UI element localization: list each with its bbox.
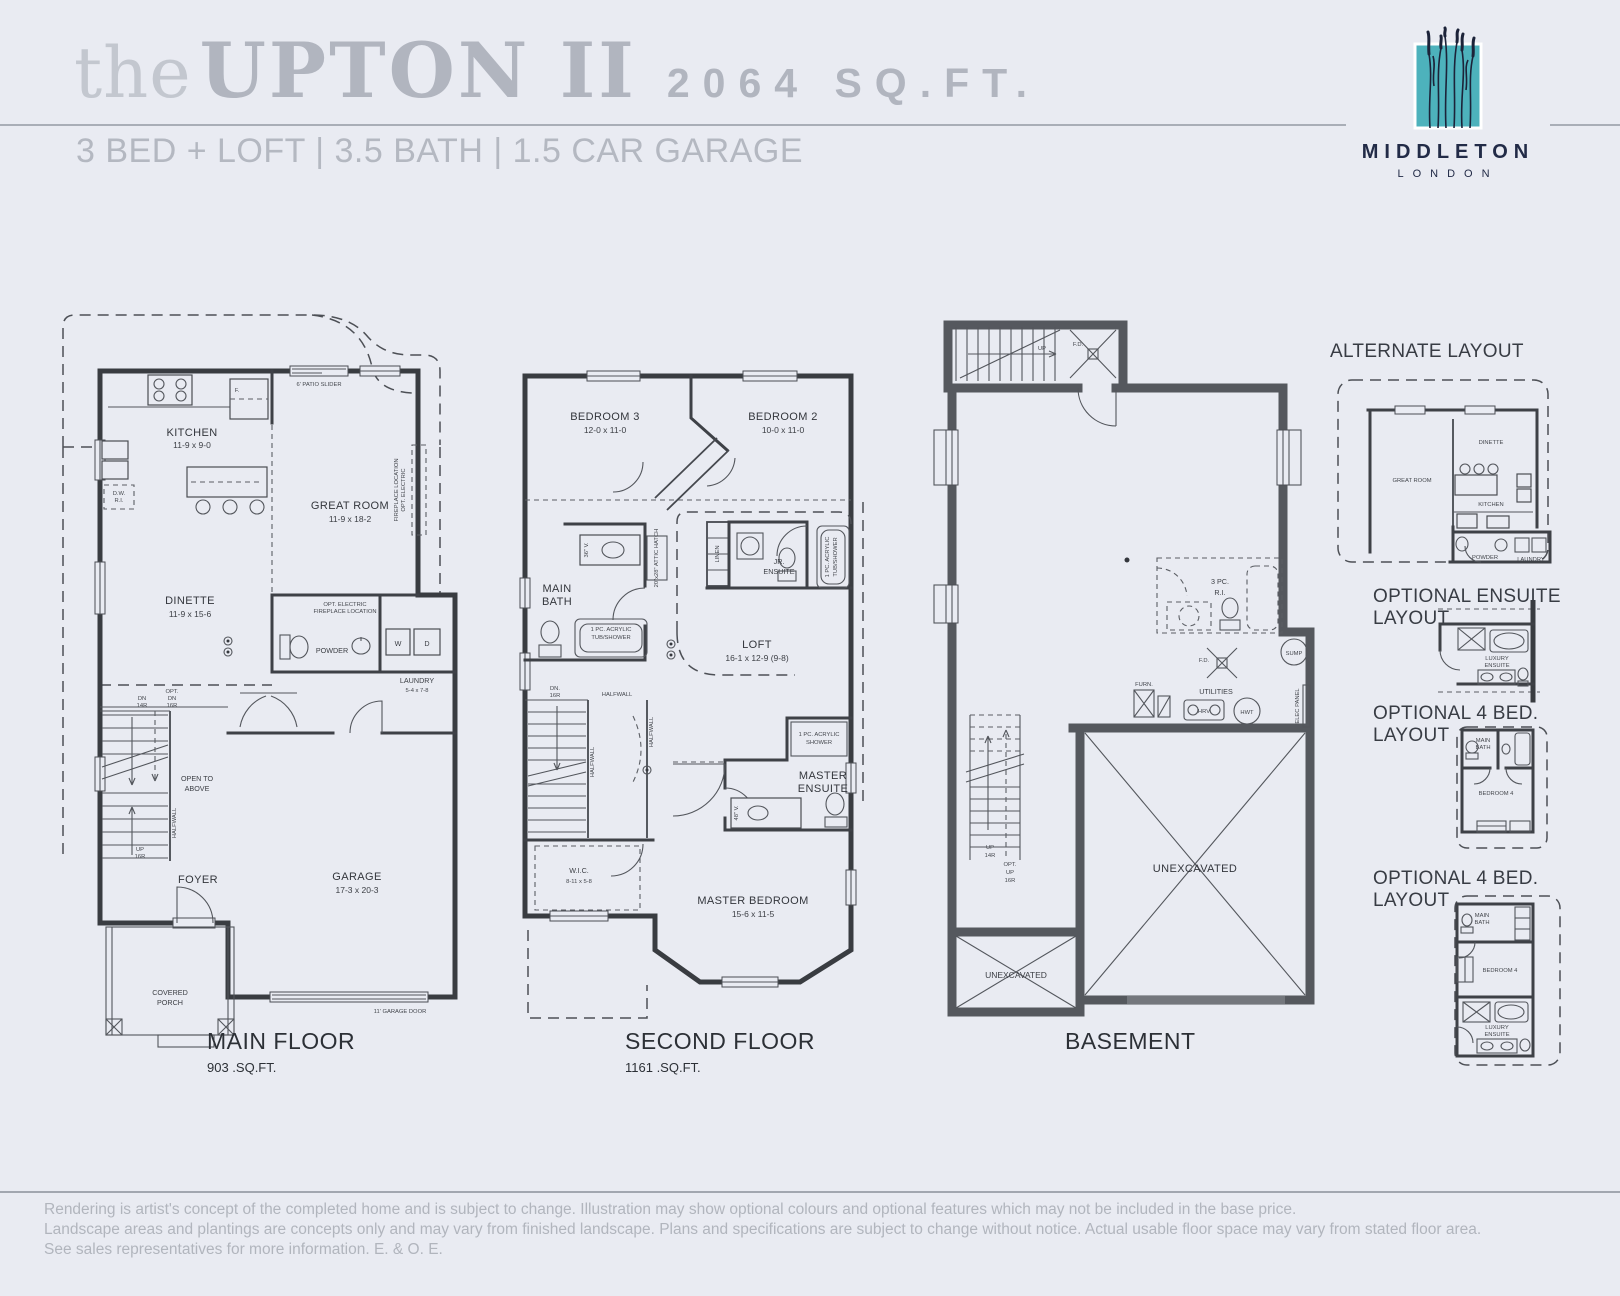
open-above-b: ABOVE [185,784,210,793]
vanity48-label: 48" V. [734,805,740,820]
closet [1477,821,1530,832]
toilet-icon [280,635,308,659]
patio-slider [290,366,348,376]
fridge-icon [230,379,268,419]
porch-label-a: COVERED [152,988,188,997]
up14-b: 14R [985,853,996,859]
alt-dinette-label: DINETTE [1479,440,1504,446]
bedroom3-label: BEDROOM 3 [570,411,640,423]
optup-c: 16R [1005,878,1016,884]
optional-4bed-plan-2: MAIN BATH BEDROOM 4 LUXURY ENSUITE [1330,890,1590,1140]
master-bedroom-dims: 15-6 x 11-5 [732,909,775,919]
opt-dn-b: DN [168,696,176,702]
b4b-bath-a: MAIN [1475,913,1490,919]
alternate-layout-plan: GREAT ROOM DINETTE KITCHEN POWDER LAUNDR… [1295,362,1595,567]
powder-label: POWDER [316,646,348,655]
dinette-label: DINETTE [165,595,215,607]
up-arrow-label: UP [1038,346,1046,352]
window [934,585,958,623]
garage-door [270,992,428,1002]
walls [1440,624,1533,684]
luxury-ensuite-b: ENSUITE [1484,663,1509,669]
foyer-label: FOYER [178,874,218,886]
logo-brand-text: MIDDLETON [1346,141,1550,164]
walk-in-closet [535,844,643,910]
dinette-dims: 11-9 x 15-6 [169,609,212,619]
halfwall-1: HALFWALL [602,692,633,698]
disclaimer: Rendering is artist's concept of the com… [44,1200,1584,1260]
foyer-closet [240,693,297,727]
fireplace-label-2a: OPT. ELECTRIC [323,602,366,608]
toilet-icon [825,793,847,827]
toilet-icon [539,621,561,657]
basement-caption: BASEMENT [1065,1028,1196,1055]
alt-powder-label: POWDER [1472,555,1498,561]
fd-label-1: F.D. [1073,342,1084,348]
fridge-label: F. [235,388,240,394]
main-floor-title: MAIN FLOOR [207,1028,355,1055]
window [95,562,105,614]
shower-icon [1463,1002,1490,1022]
halfwall-label: HALFWALL [172,807,178,838]
window [587,371,640,381]
b4b-bath-b: BATH [1474,920,1489,926]
fireplace-label-1a: OPT. ELECTRIC [401,468,407,511]
garage-door-above [1127,996,1285,1004]
tub-icon [1515,733,1530,765]
island [187,467,267,514]
window [743,371,797,381]
alternate-layout-heading: ALTERNATE LAYOUT [1330,341,1524,363]
sump-label: SUMP [1286,651,1303,657]
b4b-luxury-b: ENSUITE [1484,1032,1509,1038]
master-door [673,764,725,816]
loft-label: LOFT [742,639,772,651]
b4a-bath-b: BATH [1475,745,1490,751]
window [520,578,530,608]
garage-man-door [350,701,382,733]
toilet-icon [1502,744,1510,754]
main-floor-plan: KITCHEN 11-9 x 9-0 GREAT ROOM 11-9 x 18-… [60,295,480,1055]
great-room-dims: 11-9 x 18-2 [329,514,372,524]
jr-ensuite-b: ENSUITE [763,567,794,576]
shower-icon [791,722,847,756]
dryer-label: D [424,639,429,648]
window [550,911,608,921]
attic-hatch-label: 20"x28" ATTIC HATCH [654,529,660,588]
halfwall-2: HALFWALL [590,746,596,777]
disclaimer-line-1: Rendering is artist's concept of the com… [44,1200,1584,1220]
laundry-dims: 5-4 x 7-8 [406,688,429,694]
hwt-label: HWT [1240,710,1254,716]
shower-label-b: SHOWER [806,740,832,746]
3pc-label-a: 3 PC. [1211,577,1229,586]
window [846,870,856,905]
main-floor-sqft: 903 .SQ.FT. [207,1060,355,1075]
title-the: the [74,32,192,114]
optup-b: UP [1006,870,1014,876]
floor-drain [1070,330,1116,378]
laundry-fixtures [1515,538,1546,552]
bedroom2-label: BEDROOM 2 [748,411,818,423]
second-floor-plan: BEDROOM 3 12-0 x 11-0 BEDROOM 2 10-0 x 1… [495,330,885,1020]
master-bedroom-label: MASTER BEDROOM [697,895,808,907]
fireplace-label-1b: FIREPLACE LOCATION [394,458,400,521]
bedroom-divider [691,376,727,450]
bedroom3-dims: 12-0 x 11-0 [584,425,627,435]
logo-reeds-icon [1400,26,1496,132]
sink-icon [352,637,370,654]
disclaimer-line-2: Landscape areas and plantings are concep… [44,1220,1584,1240]
kitchen-label: KITCHEN [166,427,217,439]
window [95,757,105,791]
b4b-luxury-a: LUXURY [1485,1025,1509,1031]
master-ensuite-b: ENSUITE [798,783,848,795]
vanity-icon [1477,1039,1517,1053]
dn16-b: 16R [550,693,561,699]
vanity36-label: 36" V. [584,542,590,557]
second-floor-sqft: 1161 .SQ.FT. [625,1060,815,1075]
title-model-name: UPTON II [200,26,637,115]
page-title: the UPTON II 2064 SQ.FT. [74,26,1040,115]
wic-dims: 8-11 x 5-8 [566,879,592,885]
sink-icon [737,533,763,559]
tub2-label-b: TUB/SHOWER [833,537,839,576]
tub-icon [1490,630,1528,652]
main-bath-a: MAIN [542,583,571,595]
builder-logo: MIDDLETON LONDON [1346,26,1550,186]
garage-door-label: 11' GARAGE DOOR [374,1009,427,1015]
optup-a: OPT. [1004,862,1017,868]
wic-label: W.I.C. [569,866,589,875]
closet-walls [655,438,729,510]
second-floor-title: SECOND FLOOR [625,1028,815,1055]
basement-title: BASEMENT [1065,1028,1196,1055]
vanity-icon [1478,670,1515,684]
optional-4bed-plan-1: MAIN BATH BEDROOM 4 [1330,725,1590,885]
garage-label: GARAGE [332,871,381,883]
hrv-label: HRV [1198,709,1210,715]
b4b-bedroom-label: BEDROOM 4 [1483,968,1519,974]
tub2-label-a: 1 PC. ACRYLIC [825,537,831,578]
front-door [173,887,215,928]
stove-icon [148,375,192,405]
elec-panel-label: ELEC PANEL [1295,688,1301,724]
halfwall-3: HALFWALL [649,716,655,747]
stairs-lower [966,715,1024,860]
island [1455,464,1498,495]
fireplace-label-2b: FIREPLACE LOCATION [313,609,376,615]
unexcavated-label-1: UNEXCAVATED [985,970,1047,980]
kitchen-dims: 11-9 x 9-0 [173,440,211,450]
furnace-icon [1134,690,1170,717]
stairs [100,711,170,861]
stairs-top [956,327,1060,381]
luxury-ensuite-a: LUXURY [1485,656,1509,662]
up-label-b: 16R [135,854,146,860]
garage-dims: 17-3 x 20-3 [336,885,379,895]
tub-icon [1495,1002,1528,1022]
utilities-label: UTILITIES [1199,687,1233,696]
foundation-walls [948,388,1310,1012]
dn-label-a: DN [138,696,146,702]
tub1-label-a: 1 PC. ACRYLIC [591,627,632,633]
alt-laundry-label: LAUNDRY [1517,557,1545,563]
loft-dims: 16-1 x 12-9 (9-8) [725,653,788,663]
logo-city-text: LONDON [1346,168,1550,180]
up-label-a: UP [136,847,144,853]
dw-ri-label: R.I. [114,498,123,504]
dn16-a: DN. [550,686,560,692]
second-floor-caption: SECOND FLOOR 1161 .SQ.FT. [625,1028,815,1075]
porch-label-b: PORCH [157,998,183,1007]
linen-label: LINEN [715,545,721,562]
powder-fixtures [1456,537,1507,551]
opt-dn-c: 16R [167,703,178,709]
basement-plan: UP F.D. 3 PC. R.I. SUMP F.D. FURN. UTILI… [920,300,1320,1040]
unexcavated-label-2: UNEXCAVATED [1153,863,1237,875]
main-floor-caption: MAIN FLOOR 903 .SQ.FT. [207,1028,355,1075]
laundry-label: LAUNDRY [400,676,434,685]
toilet-icon [1520,1039,1530,1051]
3pc-label-b: R.I. [1214,588,1225,597]
dn-label-b: 14R [137,703,148,709]
bedroom2-dims: 10-0 x 11-0 [762,425,805,435]
shower-label-a: 1 PC. ACRYLIC [799,732,840,738]
alt-kitchen-label: KITCHEN [1478,502,1503,508]
bay-window [722,977,778,987]
disclaimer-line-3: See sales representatives for more infor… [44,1240,1584,1260]
footer-divider [0,1191,1620,1193]
spec-subtitle: 3 BED + LOFT | 3.5 BATH | 1.5 CAR GARAGE [76,132,803,171]
stairs [525,700,653,840]
window [360,366,400,376]
up14-a: UP [986,845,994,851]
patio-slider-label: 6' PATIO SLIDER [296,382,341,388]
dw-label: D.W. [113,491,126,497]
fd-label-2: F.D. [1199,658,1210,664]
optional-ensuite-plan: LUXURY ENSUITE [1330,600,1590,705]
vanity-icon [731,798,801,828]
title-sqft: 2064 SQ.FT. [667,60,1040,107]
floor-drain-2 [1207,648,1237,678]
jr-ensuite-a: JR. [774,557,785,566]
master-ensuite-a: MASTER [799,770,847,782]
closet [1457,957,1473,982]
main-bath-b: BATH [542,596,572,608]
dishwasher-roughin [104,485,134,509]
tub1-label-b: TUB/SHOWER [591,635,630,641]
great-room-label: GREAT ROOM [311,500,389,512]
plan-sheet: the UPTON II 2064 SQ.FT. 3 BED + LOFT | … [0,0,1620,1296]
b4a-bedroom-label: BEDROOM 4 [1479,791,1515,797]
linen-closet [1515,907,1530,940]
window [934,430,958,485]
opt-dn-a: OPT. [166,689,179,695]
b4a-bath-a: MAIN [1476,738,1491,744]
pantry-icon [102,441,128,479]
washer-label: W [395,639,402,648]
alt-great-room-label: GREAT ROOM [1392,478,1431,484]
open-above-a: OPEN TO [181,774,213,783]
basement-door [1078,388,1116,426]
toilet-icon [1461,914,1473,933]
shower-icon [1458,628,1485,650]
furnace-label: FURN. [1135,682,1153,688]
